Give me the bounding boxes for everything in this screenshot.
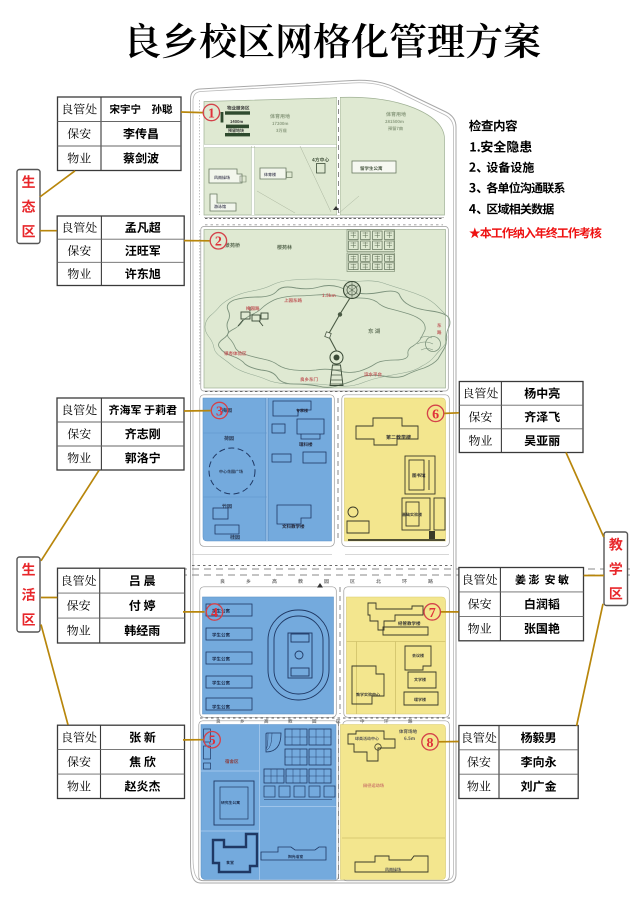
svg-text:4: 4 [211,606,218,621]
svg-text:6: 6 [432,407,439,422]
svg-text:1: 1 [208,106,215,121]
svg-text:3: 3 [216,404,223,419]
svg-text:7: 7 [429,606,436,621]
svg-text:5: 5 [209,734,216,749]
svg-text:2: 2 [215,235,222,250]
svg-text:8: 8 [427,736,434,751]
